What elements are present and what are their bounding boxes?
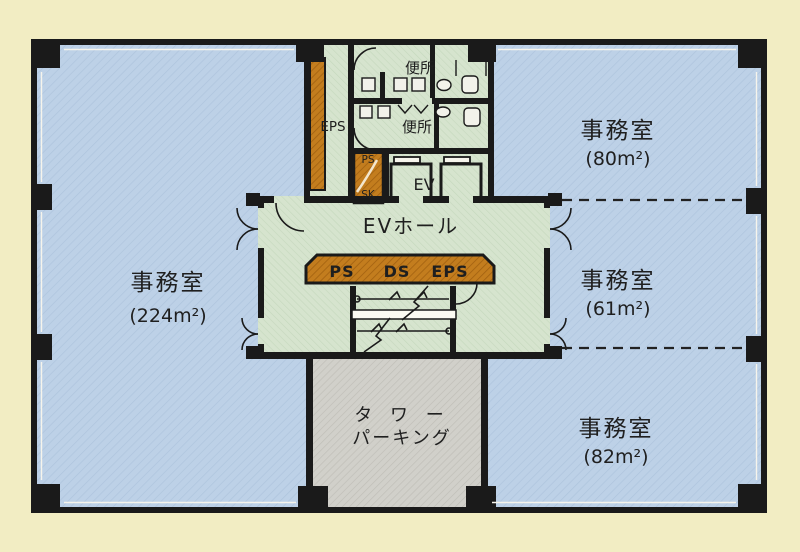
bar-eps-label: EPS — [431, 262, 468, 281]
elevator-label: EV — [413, 175, 434, 194]
floor-plan-svg: 事務室 (224m²) 事務室 (80m²) 事務室 (61m²) 事務室 (8… — [0, 0, 800, 552]
toilet-lower-label: 便所 — [402, 118, 432, 136]
office-bottom-right-area: (82m²) — [583, 446, 648, 468]
toilet-upper-label: 便所 — [405, 59, 435, 77]
office-top-right-area: (80m²) — [585, 148, 650, 170]
bar-ds-label: DS — [384, 262, 411, 281]
office-left-label: 事務室 — [131, 270, 206, 296]
parking-label-line2: パーキング — [352, 428, 451, 449]
floor-plan: 事務室 (224m²) 事務室 (80m²) 事務室 (61m²) 事務室 (8… — [0, 0, 800, 552]
ev-hall-label: EVホール — [363, 214, 459, 238]
bar-ps-label: PS — [329, 262, 354, 281]
eps-shaft-label: EPS — [320, 119, 345, 135]
office-left-area: (224m²) — [129, 305, 206, 327]
sk-label: SK — [361, 189, 376, 201]
office-mid-right-area: (61m²) — [585, 298, 650, 320]
ps-label: PS — [362, 154, 375, 166]
office-bottom-right-label: 事務室 — [579, 416, 654, 442]
parking-label-line1: タ ワ ー — [354, 405, 449, 426]
office-mid-right-label: 事務室 — [581, 268, 656, 294]
office-top-right-label: 事務室 — [581, 118, 656, 144]
